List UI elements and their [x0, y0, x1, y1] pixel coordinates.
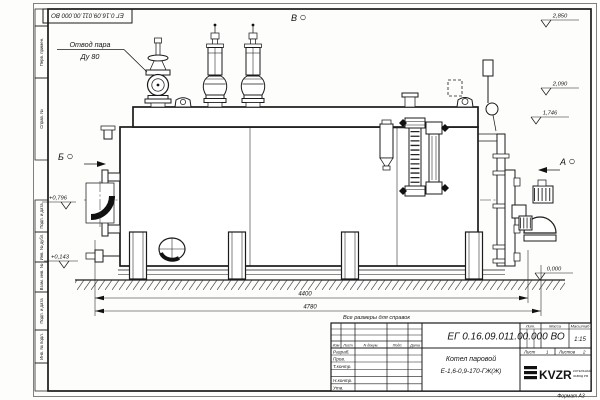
row-tkontr: Т.контр. — [333, 364, 352, 369]
elevation-value: 1,746 — [543, 111, 558, 117]
title-block: ЕГ 0.16.09.011.00.000 ВО Изм Лист N доку… — [331, 323, 592, 391]
scale-value: 1:15 — [574, 337, 586, 343]
elevation-value: 0,000 — [547, 267, 562, 273]
header-data: Дата — [409, 343, 420, 347]
elevation-value: +0,796 — [49, 196, 68, 202]
elevation-value: +0,143 — [51, 255, 70, 261]
view-letter-a: А — [559, 157, 566, 167]
burner-unit — [86, 181, 114, 227]
product-model: Е-1,6-0,9-170-ГЖ(Ж) — [441, 368, 502, 375]
gauge-column-2 — [429, 134, 439, 182]
steam-outlet-text-2: Ду 80 — [80, 52, 100, 61]
logo-sub-2: ЗАВОД РФ — [573, 374, 589, 378]
header-podp: Подп. — [393, 343, 403, 347]
elevation-value: 2,850 — [552, 14, 568, 20]
header-izm: Изм — [333, 343, 340, 347]
lifting-lug-right — [457, 98, 473, 108]
lifting-lug-left — [175, 98, 191, 107]
logo-bars-icon — [524, 376, 537, 379]
logo-text: KVZR — [539, 368, 572, 382]
reference-note: Все размеры для справок — [343, 315, 410, 321]
row-nkontr: Н.контр. — [333, 378, 352, 383]
manhole — [159, 238, 185, 260]
header-ndoc: N докум. — [364, 343, 379, 347]
header-massa: Масса — [549, 324, 562, 329]
view-letter-v: В — [291, 13, 297, 23]
valve-handwheel — [148, 55, 168, 61]
elevation-value: 2,090 — [552, 82, 568, 88]
sheet-label: Лист — [523, 350, 536, 355]
product-name: Котел паровой — [446, 355, 496, 363]
support-leg — [342, 232, 359, 279]
row-prov: Пров. — [333, 357, 345, 362]
margin-label-invdubl: Инв. № дубл. — [39, 234, 44, 261]
header-masshtab: Масштаб — [571, 324, 590, 329]
header-lit: Лит. — [525, 324, 535, 329]
ground-hatch — [75, 280, 565, 290]
margin-label-sprav: Справ. № — [39, 109, 44, 129]
margin-label-perv: Перв. примен. — [39, 38, 44, 67]
condensate-vessel — [380, 124, 393, 158]
margin-label-invpodl: Инв. № подл. — [39, 333, 44, 360]
siphon-loop — [486, 103, 498, 115]
drum-nozzle — [402, 93, 418, 97]
format-label: Формат А3 — [557, 394, 585, 400]
support-leg — [466, 232, 483, 279]
boiler-drawing-svg: Перв. примен. Справ. № Подп. и дата Инв.… — [0, 0, 600, 400]
logo-sub-1: КОТЕЛЬНЫЙ — [573, 369, 592, 373]
sheets-no: 2 — [582, 350, 586, 355]
top-stamp-doc-number: ЕГ 0.16.09.011.00.000 ВО — [51, 12, 124, 19]
dim-value-4400: 4400 — [298, 292, 312, 298]
drum-nozzle-neck — [405, 97, 415, 107]
header-list: Лист — [342, 343, 353, 347]
dim-value-4780: 4780 — [303, 305, 317, 311]
support-leg — [130, 232, 147, 279]
sheets-label: Листов — [558, 350, 576, 355]
blower-base — [524, 235, 556, 241]
view-letter-b: Б — [58, 152, 64, 162]
drawing-sheet: Перв. примен. Справ. № Подп. и дата Инв.… — [0, 0, 600, 400]
margin-label-vzam: Взам. инв. № — [39, 263, 44, 290]
steam-outlet-text-1: Отвод пара — [69, 40, 110, 49]
title-doc-number: ЕГ 0.16.09.011.00.000 ВО — [447, 332, 565, 343]
logo-bars-icon — [524, 366, 537, 369]
support-leg — [229, 232, 246, 279]
logo-bars-icon — [524, 371, 537, 374]
row-razrab: Разраб. — [333, 350, 350, 355]
margin-label-podp2: Подп. и дата — [39, 298, 44, 324]
row-utv: Утв. — [333, 385, 343, 390]
margin-label-podp1: Подп. и дата — [39, 203, 44, 229]
